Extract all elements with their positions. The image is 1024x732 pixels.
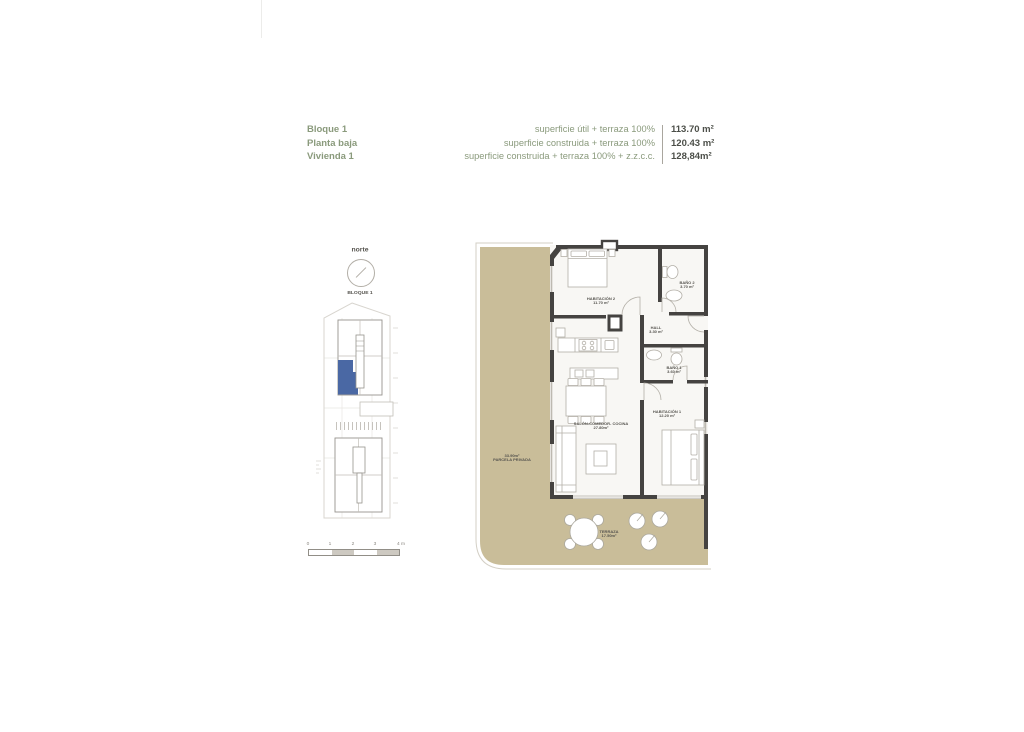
- north-label: norte: [335, 246, 386, 254]
- scale-segment: [377, 550, 400, 555]
- site-pool: [360, 402, 393, 416]
- unit-identification: Bloque 1 Planta baja Vivienda 1: [307, 123, 357, 164]
- scale-segment: [354, 550, 377, 555]
- scale-segment: [309, 550, 332, 555]
- dining-furniture: [566, 379, 606, 424]
- floor-title: Planta baja: [307, 137, 357, 151]
- room-label-salon-comedor-cocina: SALÓN-COMEDOR- COCINA 27.80m²: [571, 422, 631, 430]
- metric-label: superficie construida + terraza 100% + z…: [415, 150, 655, 164]
- stair-core-upper: [356, 335, 364, 388]
- site-key-plan: [315, 298, 405, 533]
- surface-metric-labels: superficie útil + terraza 100% superfici…: [415, 123, 655, 164]
- room-label-bano-2: BAÑO 2 3.70 m²: [657, 281, 717, 289]
- scale-segment: [332, 550, 355, 555]
- metric-value: 120.43 m²: [671, 137, 714, 151]
- room-label-terraza: TERRAZA 17.50m²: [579, 530, 639, 538]
- room-label-bano-1: BAÑO 1 3.60 m²: [644, 366, 704, 374]
- graphic-scale-bar: [308, 549, 400, 556]
- plan-sheet: Bloque 1 Planta baja Vivienda 1 superfic…: [0, 0, 1024, 732]
- room-label-habitacion-2: HABITACIÓN 2 11.70 m²: [571, 297, 631, 305]
- bedroom1-furniture: [662, 420, 704, 485]
- site-block-label: BLOQUE 1: [341, 290, 378, 296]
- unit-title: Vivienda 1: [307, 150, 357, 164]
- page-crop-mark: [261, 0, 262, 38]
- room-label-habitacion-1: HABITACIÓN 1 12.20 m²: [637, 410, 697, 418]
- bedroom2-furniture: [561, 249, 615, 287]
- scale-tick: 2: [344, 541, 362, 546]
- metric-value: 128,84m²: [671, 150, 714, 164]
- scale-tick: 4 m: [392, 541, 410, 546]
- scale-tick: 0: [299, 541, 317, 546]
- room-label-parcela-privada: 33.90m² PARCELA PRIVADA: [482, 454, 542, 462]
- metric-label: superficie construida + terraza 100%: [415, 137, 655, 151]
- floor-plan: HABITACIÓN 2 11.70 m² BAÑO 2 3.70 m² HAL…: [455, 230, 717, 582]
- scale-tick: 3: [366, 541, 384, 546]
- scale-tick: 1: [321, 541, 339, 546]
- metric-label: superficie útil + terraza 100%: [415, 123, 655, 137]
- wall-pillar: [609, 316, 621, 330]
- header-divider: [662, 125, 663, 164]
- room-label-hall: HALL 3.30 m²: [626, 326, 686, 334]
- surface-metric-values: 113.70 m² 120.43 m² 128,84m²: [671, 123, 714, 164]
- metric-value: 113.70 m²: [671, 123, 714, 137]
- block-title: Bloque 1: [307, 123, 357, 137]
